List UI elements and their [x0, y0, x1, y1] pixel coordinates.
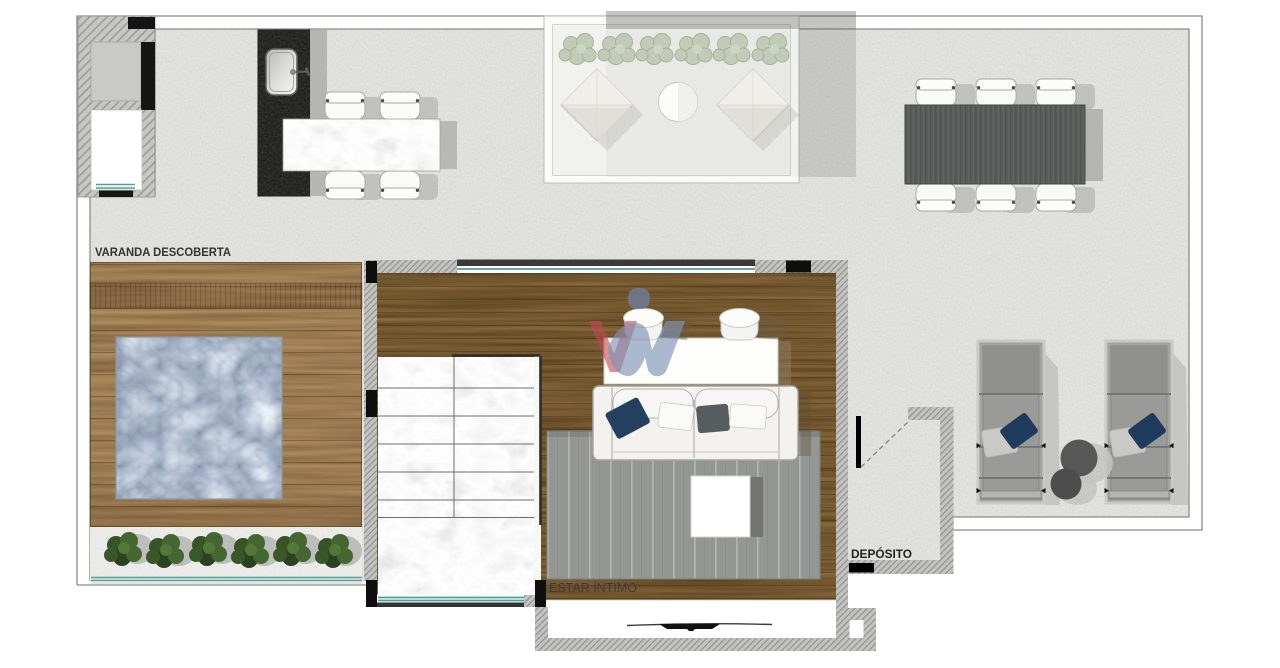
svg-text:DEPÓSITO: DEPÓSITO [851, 548, 912, 561]
svg-text:ESTAR ÍNTIMO: ESTAR ÍNTIMO [549, 580, 637, 595]
svg-text:VARANDA DESCOBERTA: VARANDA DESCOBERTA [95, 245, 231, 259]
